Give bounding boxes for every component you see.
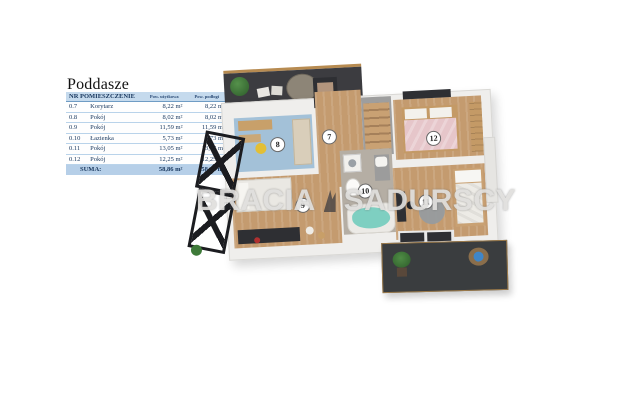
blue-cushion [473, 251, 483, 261]
right-wall [483, 137, 498, 204]
bathtub-water [352, 206, 391, 229]
page: Poddasze NR POMIESZCZENIE Pow. użytkowa … [0, 0, 620, 400]
row-area1: 11,59 m² [143, 123, 185, 133]
plant-pot [397, 267, 407, 276]
bed-frame [401, 105, 459, 154]
row-area1: 8,22 m² [143, 102, 185, 112]
dark-desk [396, 191, 407, 221]
row-name: Pokój [87, 123, 143, 133]
row-area1: 8,02 m² [143, 112, 185, 122]
room-11-floor [393, 163, 489, 240]
stairs [363, 102, 391, 151]
row-nr: 0.7 [66, 102, 87, 112]
window-band [403, 89, 451, 100]
bed-frame [453, 167, 486, 226]
suma-label: SUMA: [66, 165, 143, 175]
dark-desk [238, 227, 301, 244]
railing-panel [195, 130, 245, 195]
row-name: Korytarz [87, 102, 143, 112]
bathtub [346, 202, 396, 234]
row-area1: 13,05 m² [143, 144, 185, 154]
row-name: Pokój [87, 112, 143, 122]
row-area1: 5,73 m² [143, 133, 185, 143]
sofa [292, 118, 312, 165]
row-nr: 0.9 [66, 123, 87, 133]
suma-area1: 58,86 m² [143, 165, 185, 175]
pillow [257, 87, 270, 98]
pillow [405, 108, 427, 119]
door-panel [427, 232, 451, 242]
duvet [455, 182, 483, 223]
sink-cabinet [374, 154, 390, 181]
row-name: Pokój [87, 154, 143, 164]
bed [235, 177, 293, 212]
washing-machine [343, 154, 362, 173]
row-area1: 12,25 m² [143, 154, 185, 164]
row-nr: 0.11 [66, 144, 87, 154]
washer-door [348, 159, 356, 167]
wardrobe [469, 101, 484, 152]
pillow [429, 107, 451, 118]
row-nr: 0.8 [66, 112, 87, 122]
header-area-1: Pow. użytkowa [143, 92, 185, 102]
row-name: Pokój [87, 144, 143, 154]
desk [238, 119, 272, 131]
side-table [306, 226, 314, 234]
plant-icon [230, 77, 250, 97]
pillow [271, 86, 282, 96]
terrace-plant-icon [392, 251, 410, 267]
sink [375, 156, 388, 167]
row-nr: 0.12 [66, 154, 87, 164]
row-name: Łazienka [87, 133, 143, 143]
door-panel [400, 232, 424, 242]
terrace-deck [381, 240, 508, 293]
side-table [318, 232, 325, 239]
floor-plan: 7 8 9 10 11 12 [184, 38, 529, 355]
row-nr: 0.10 [66, 133, 87, 143]
desk-chair [406, 201, 414, 209]
rattan-chair [468, 247, 488, 266]
pillow [455, 169, 482, 182]
header-nr-pomieszczenie: NR POMIESZCZENIE [66, 92, 143, 102]
yellow-chair [255, 143, 267, 155]
room-9-floor [231, 173, 343, 249]
room-12-floor [393, 95, 484, 160]
